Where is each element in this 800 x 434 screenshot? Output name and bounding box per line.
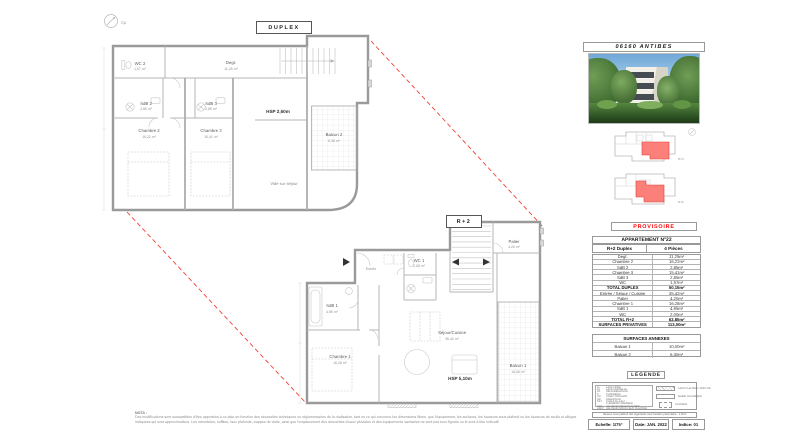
entrance-arrow xyxy=(343,258,350,266)
room-area-sejour: 35,42 m² xyxy=(445,337,460,341)
legend-title: LÉGENDE xyxy=(627,371,665,379)
row-label: SURFACES PRIVATIVES xyxy=(593,322,652,326)
room-area-balcon1: 10,00 m² xyxy=(511,370,526,374)
room-area-palier: 4,20 m² xyxy=(508,245,521,249)
photo-bush xyxy=(597,100,617,109)
compass-icon: Cp xyxy=(105,15,128,28)
label-hsp-duplex: HSP 2,60m xyxy=(266,109,290,114)
row-value: 6,30m² xyxy=(652,351,700,358)
keyplan-upper-label: R+3 xyxy=(678,157,684,161)
room-area-sdb2: 2,85 m² xyxy=(140,107,153,111)
duplex-balcony xyxy=(312,106,358,170)
room-label-wc2: WC 2 xyxy=(135,61,146,66)
room-label-sdb2: SdB 2 xyxy=(140,101,152,106)
room-label-wc1: WC 1 xyxy=(414,258,425,263)
room-label-balcon2: Balcon 2 xyxy=(326,132,343,137)
keyplan-upper xyxy=(612,128,678,165)
placard-swatch xyxy=(659,402,672,408)
row-label: Balcon 1 xyxy=(593,343,652,350)
legend-abbreviations: LLLAVE-LINGE LVLAVE-VAISSELLE RFRÉFRIGÉR… xyxy=(595,385,653,407)
legend-box: LLLAVE-LINGE LVLAVE-VAISSELLE RFRÉFRIGÉR… xyxy=(592,382,697,410)
room-area-sdb1: 4,95 m² xyxy=(326,310,339,314)
annexes-row: Balcon 110,00m² xyxy=(593,343,700,350)
room-label-chambre3: Chambre 3 xyxy=(200,128,222,133)
label-vide-sur-sejour: Vide sur séjour xyxy=(270,181,298,186)
photo-bush xyxy=(637,101,663,109)
room-area-balcon2: 6,30 m² xyxy=(328,139,341,143)
apartment-type-row: R+2 Duplex 4 Pièces xyxy=(592,244,701,253)
room-label-sdb1: SdB 1 xyxy=(326,303,338,308)
photo-tree-left-small xyxy=(611,70,637,104)
building-photo xyxy=(588,53,700,124)
keyplan-lower xyxy=(612,168,678,208)
duplex-level-tag: DUPLEX xyxy=(256,21,312,34)
keyplan-area: R+3 R+2 xyxy=(583,125,707,220)
room-label-sejour: Séjour/Cuisine xyxy=(438,330,467,335)
keyplan-lower-label: R+2 xyxy=(678,200,684,204)
room-label-entree: Entrée xyxy=(366,267,376,271)
keyplan-compass-icon xyxy=(687,127,697,137)
row-value: 113,00m² xyxy=(652,322,700,326)
legend-item: HSFPHAUTEUR SOUS FAUX PLAFOND xyxy=(597,408,651,410)
room-label-sdb3: SdB 3 xyxy=(205,101,217,106)
legend-note: Hauteur sous plafond des logements sauf … xyxy=(592,412,697,418)
room-area-sdb3: 2,85 m² xyxy=(205,107,218,111)
project-location-title: 06160 ANTIBES xyxy=(583,42,705,52)
apartment-pieces: 4 Pièces xyxy=(646,245,700,252)
room-label-chambre1: Chambre 1 xyxy=(329,354,351,359)
photo-bush xyxy=(673,100,691,109)
footer-indice: Indice: 01 xyxy=(672,419,705,430)
room-area-degt: 11,25 m² xyxy=(224,67,238,71)
r2-plan: SdB 1 4,95 m² Chambre 1 16,28 m² Entrée … xyxy=(298,222,544,408)
nota-block: NOTA : Des modifications sont susceptibl… xyxy=(135,411,577,424)
row-value: 10,00m² xyxy=(652,343,700,350)
floor-plan-sheet: Cp xyxy=(0,0,800,434)
annexes-table: SURFACES ANNEXES Balcon 110,00m² Balcon … xyxy=(592,334,701,357)
r2-level-tag: R+2 xyxy=(446,215,482,228)
label-hsp-r2: HSP 5,10m xyxy=(448,376,472,381)
room-area-wc1: 2,00 m² xyxy=(413,264,426,268)
table-row-surfaces-privatives: SURFACES PRIVATIVES113,00m² xyxy=(593,321,700,326)
room-label-balcon1: Balcon 1 xyxy=(510,363,527,368)
provisoire-stamp: PROVISOIRE xyxy=(611,222,697,231)
room-area-chambre2: 16,22 m² xyxy=(142,135,157,139)
row-label: Balcon 2 xyxy=(593,351,652,358)
compass-label: Cp xyxy=(121,20,127,25)
room-label-palier: Palier xyxy=(509,239,521,244)
legend-symbol-placard: PLACARD xyxy=(659,402,687,408)
nota-text: Des modifications sont susceptibles d'êt… xyxy=(135,415,576,423)
annexes-row: Balcon 26,30m² xyxy=(593,350,700,358)
apartment-type: R+2 Duplex xyxy=(593,245,646,252)
legend-symbol-faux-plafond: FAUX PLAFOND / SOFFITE xyxy=(656,386,711,391)
surface-table: Degt.11,25m² Chambre 216,22m² SdB 22,85m… xyxy=(592,254,701,328)
room-area-chambre3: 15,41 m² xyxy=(204,135,219,139)
room-area-chambre1: 16,28 m² xyxy=(333,361,348,365)
footer-scale: Echelle: 1/75° xyxy=(588,419,630,430)
room-label-chambre2: Chambre 2 xyxy=(138,128,160,133)
gaine-technique-swatch xyxy=(656,394,675,399)
room-label-degt: Degt. xyxy=(226,60,236,65)
duplex-plan: WC 2 1,57 m² SdB 2 2,85 m² SdB 3 2,85 m²… xyxy=(102,36,372,210)
faux-plafond-swatch xyxy=(656,386,675,391)
r2-balcony xyxy=(498,302,539,402)
room-area-wc2: 1,57 m² xyxy=(134,67,147,71)
footer-date: Date: JAN. 2022 xyxy=(633,419,669,430)
annexes-title: SURFACES ANNEXES xyxy=(593,335,700,343)
apartment-title: APPARTEMENT N°22 xyxy=(592,236,701,244)
legend-symbol-gaine-technique: GAINE TECHNIQUE xyxy=(656,394,702,399)
